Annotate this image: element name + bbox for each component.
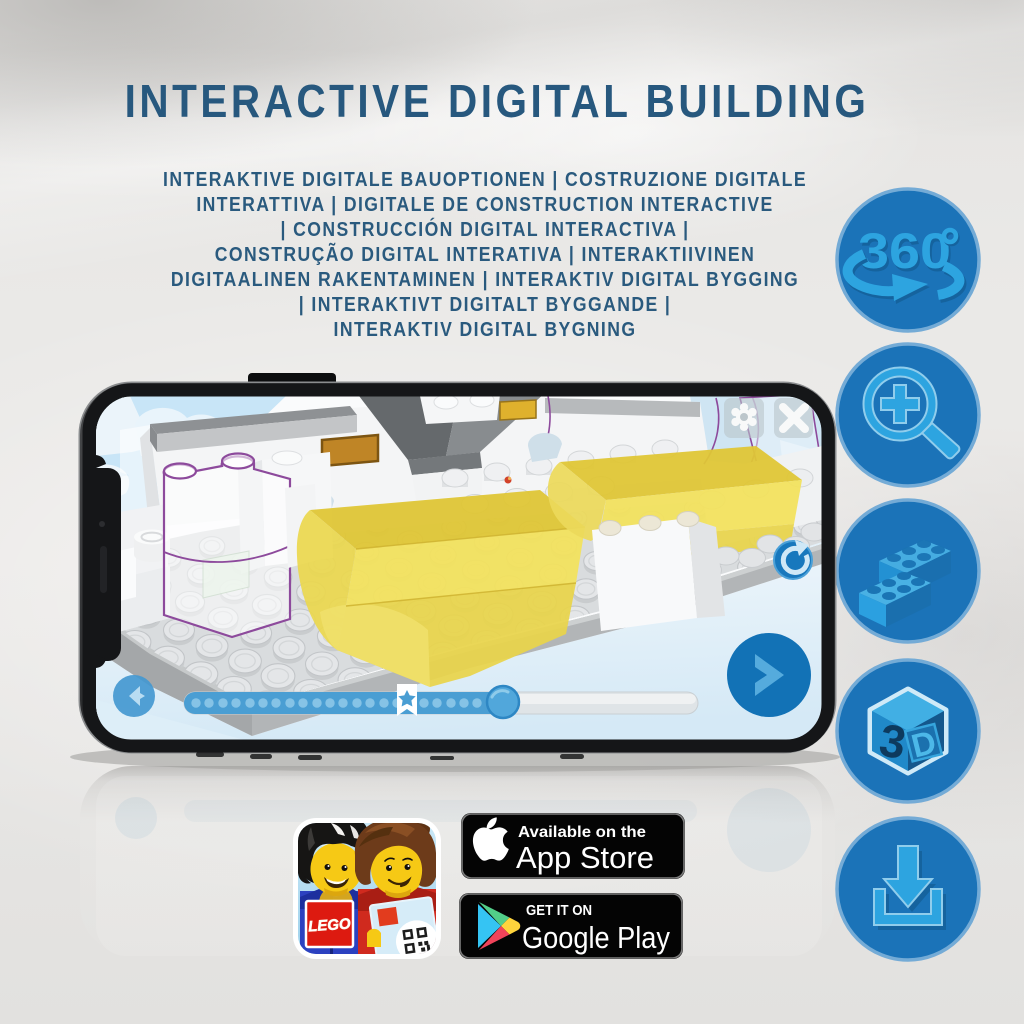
svg-text:App Store: App Store [516,840,654,875]
svg-text:Google Play: Google Play [522,920,670,955]
svg-text:GET IT ON: GET IT ON [526,903,592,919]
svg-text:360: 360 [858,223,951,279]
svg-text:Available on the: Available on the [518,824,646,841]
svg-text:LEGO: LEGO [308,915,352,935]
